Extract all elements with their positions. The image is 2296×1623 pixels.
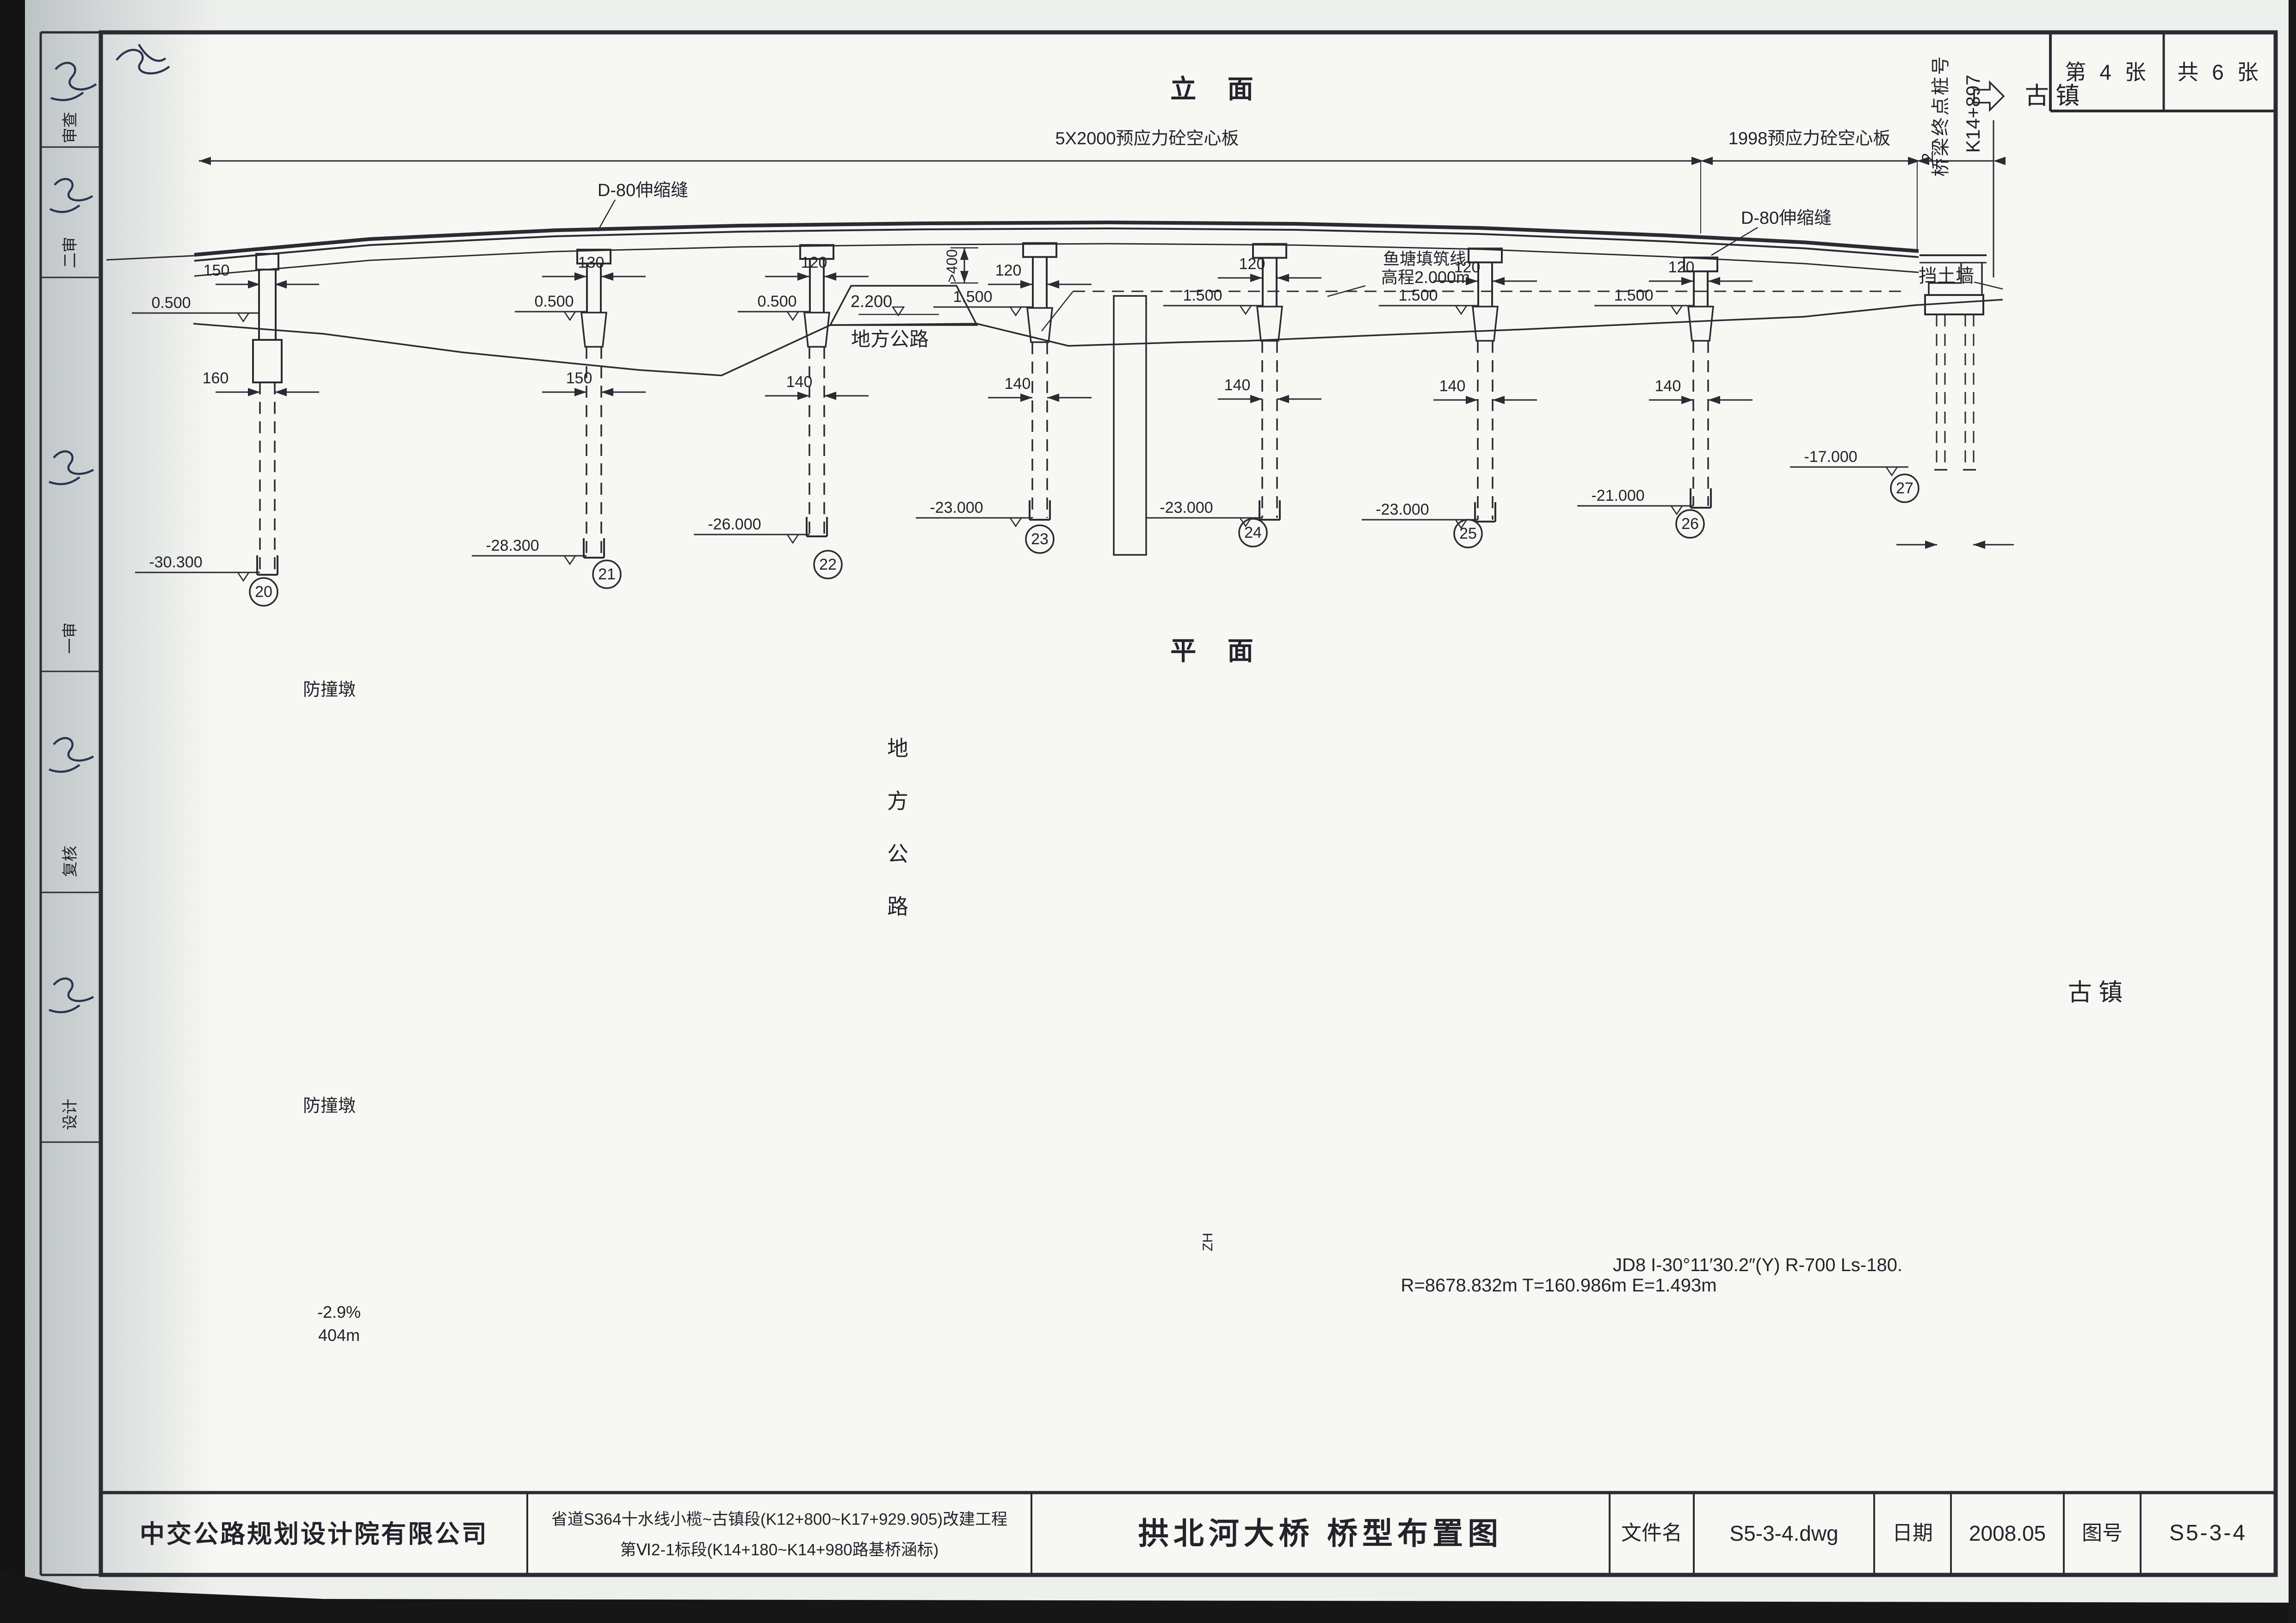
level-mark-icon bbox=[787, 312, 798, 320]
base-level: -26.000 bbox=[708, 516, 761, 532]
dim-label: 140 bbox=[1655, 378, 1681, 394]
sheet-total: 共 6 张 bbox=[2177, 61, 2262, 83]
dim-label: 140 bbox=[1439, 378, 1466, 394]
level-mark-icon bbox=[564, 556, 575, 564]
handwritten-signature bbox=[50, 179, 93, 212]
base-level: -17.000 bbox=[1804, 449, 1857, 465]
margin-label-shencha: 审查 bbox=[62, 112, 78, 143]
town-label-elevation: 古 镇 bbox=[2025, 84, 2080, 108]
date-value: 2008.05 bbox=[1969, 1523, 2046, 1544]
dim-label: 150 bbox=[204, 263, 230, 278]
level-mark-icon bbox=[564, 312, 575, 320]
span-label-right: 1998预应力砼空心板 bbox=[1728, 130, 1891, 148]
company-name: 中交公路规划设计院有限公司 bbox=[140, 1522, 488, 1547]
curve-data-1: JD8 I-30°11′30.2″(Y) R-700 Ls-180. bbox=[1613, 1256, 1902, 1274]
arrowhead-icon bbox=[248, 388, 260, 396]
crash-block-top: 防撞墩 bbox=[303, 681, 356, 699]
level-mark-icon bbox=[1671, 306, 1682, 314]
ground-line bbox=[193, 300, 2003, 375]
dim-label: 150 bbox=[566, 370, 593, 386]
arrowhead-icon bbox=[1250, 395, 1262, 403]
handwritten-signature bbox=[49, 738, 93, 772]
expansion-joint-left: D-80伸缩缝 bbox=[598, 182, 688, 199]
arrowhead-icon bbox=[1250, 274, 1262, 282]
dim-label: 130 bbox=[578, 255, 605, 270]
end-gap-dim: 2 bbox=[1920, 153, 1936, 162]
local-road-label-plan: 地方公路 bbox=[886, 737, 907, 948]
arrowhead-icon bbox=[1466, 396, 1478, 404]
arrowhead-icon bbox=[1925, 541, 1937, 549]
arrowhead-icon bbox=[1708, 277, 1720, 285]
road-clearance: >400 bbox=[944, 249, 959, 283]
project-line2: 第Ⅵ2-1标段(K14+180~K14+980路基桥涵标) bbox=[620, 1542, 939, 1558]
base-level: -23.000 bbox=[1160, 500, 1213, 516]
arrowhead-icon bbox=[1493, 396, 1505, 404]
arrowhead-icon bbox=[1681, 396, 1693, 404]
drawingno-value: S5-3-4 bbox=[2169, 1522, 2247, 1544]
scan-edge-bottom bbox=[0, 1571, 2296, 1623]
expansion-joint-right: D-80伸缩缝 bbox=[1741, 209, 1832, 227]
file-label: 文件名 bbox=[1621, 1523, 1682, 1543]
pier-number: 27 bbox=[1896, 480, 1913, 496]
pier-number: 23 bbox=[1031, 531, 1049, 547]
arrowhead-icon bbox=[1047, 280, 1059, 289]
cap-level: 1.500 bbox=[1614, 288, 1653, 303]
elevation-title: 立 面 bbox=[1170, 76, 1265, 102]
arrowhead-icon bbox=[797, 392, 809, 400]
base-level: -28.300 bbox=[486, 538, 539, 553]
dim-label: 160 bbox=[203, 370, 229, 386]
pier-number: 25 bbox=[1459, 526, 1477, 541]
cap-level: 1.500 bbox=[1398, 288, 1438, 303]
arrowhead-icon bbox=[824, 272, 836, 281]
polyline bbox=[598, 200, 615, 231]
grade-length: 404m bbox=[318, 1327, 360, 1344]
sheet-page: 第 4 张 bbox=[2065, 61, 2149, 83]
arrowhead-icon bbox=[1691, 157, 1703, 165]
plan-title: 平 面 bbox=[1170, 638, 1265, 664]
base-level: -23.000 bbox=[1376, 502, 1429, 517]
handwritten-signature bbox=[49, 451, 93, 484]
curve-data-2: R=8678.832m T=160.986m E=1.493m bbox=[1401, 1276, 1716, 1295]
arrowhead-icon bbox=[1020, 280, 1032, 289]
arrowhead-icon bbox=[1493, 277, 1505, 285]
arrowhead-icon bbox=[1994, 157, 2006, 165]
arrowhead-icon bbox=[275, 388, 287, 396]
arrowhead-icon bbox=[960, 248, 969, 260]
handwritten-signature bbox=[49, 978, 93, 1012]
dim-label: 140 bbox=[1224, 377, 1251, 393]
level-mark-icon bbox=[1886, 467, 1897, 475]
level-mark-icon bbox=[238, 313, 249, 321]
level-mark-icon bbox=[1010, 518, 1021, 526]
polygon bbox=[1027, 308, 1052, 342]
arrowhead-icon bbox=[601, 272, 613, 281]
road-elev: 2.200 bbox=[851, 293, 892, 310]
base-level: -23.000 bbox=[930, 500, 983, 516]
rect bbox=[256, 254, 278, 270]
level-mark-icon bbox=[238, 572, 249, 581]
local-road-label-elevation: 地方公路 bbox=[851, 330, 929, 349]
base-level: -21.000 bbox=[1591, 488, 1644, 504]
arrowhead-icon bbox=[1277, 274, 1289, 282]
drawingno-label: 图号 bbox=[2082, 1523, 2123, 1543]
pier-number: 20 bbox=[255, 584, 272, 600]
pier-bearing bbox=[1023, 243, 1056, 257]
pier-number: 21 bbox=[598, 566, 616, 582]
arrowhead-icon bbox=[199, 157, 211, 165]
arrowhead-icon bbox=[1908, 157, 1920, 165]
rect bbox=[1114, 296, 1146, 555]
zh-mark: ZH bbox=[1201, 1233, 1215, 1251]
arrowhead-icon bbox=[1277, 395, 1289, 403]
arrowhead-icon bbox=[1681, 277, 1693, 285]
handwritten-signature bbox=[51, 63, 96, 100]
grade-label: -2.9% bbox=[317, 1304, 361, 1321]
span-label-left: 5X2000预应力砼空心板 bbox=[1055, 130, 1239, 148]
line bbox=[106, 256, 194, 260]
project-line1: 省道S364十水线小榄~古镇段(K12+800~K17+929.905)改建工程 bbox=[551, 1512, 1007, 1528]
date-label: 日期 bbox=[1892, 1523, 1933, 1543]
cap-level: 0.500 bbox=[151, 295, 191, 311]
arrowhead-icon bbox=[824, 392, 836, 400]
dim-label: 140 bbox=[786, 374, 813, 390]
bridge-end-station: K14+897 bbox=[1963, 74, 1983, 153]
scan-edge-left bbox=[0, 0, 25, 1623]
margin-label-ershen: 二审 bbox=[62, 237, 78, 268]
margin-label-fuhe: 复核 bbox=[62, 846, 78, 877]
arrowhead-icon bbox=[1047, 393, 1059, 402]
pier-number: 26 bbox=[1681, 516, 1699, 532]
file-value: S5-3-4.dwg bbox=[1729, 1523, 1838, 1544]
polygon bbox=[1688, 307, 1713, 341]
level-mark-icon bbox=[1456, 306, 1467, 314]
town-label-plan: 古 镇 bbox=[2068, 981, 2123, 1005]
crash-block-bottom: 防撞墩 bbox=[303, 1097, 356, 1115]
pier-number: 24 bbox=[1244, 525, 1262, 541]
margin-label-yishen: 一审 bbox=[62, 622, 78, 654]
rect bbox=[253, 340, 282, 382]
polyline bbox=[1974, 282, 2003, 289]
dim-label: 120 bbox=[1668, 259, 1695, 275]
cap-level: 1.500 bbox=[1183, 288, 1222, 303]
arrowhead-icon bbox=[1708, 396, 1720, 404]
drawing-frame bbox=[101, 32, 2276, 1575]
dim-label: 120 bbox=[801, 255, 827, 270]
polygon bbox=[1257, 307, 1282, 341]
arrowhead-icon bbox=[1973, 541, 1985, 549]
polygon bbox=[581, 313, 606, 347]
arrowhead-icon bbox=[574, 272, 586, 281]
polygon bbox=[1473, 307, 1498, 341]
arrowhead-icon bbox=[601, 388, 613, 396]
cap-level: 0.500 bbox=[757, 294, 796, 309]
dim-label: 120 bbox=[995, 263, 1022, 278]
base-level: -30.300 bbox=[149, 554, 202, 570]
dim-label: 120 bbox=[1454, 259, 1481, 275]
arrowhead-icon bbox=[797, 272, 809, 281]
scan-edge-right bbox=[2289, 0, 2296, 1623]
drawing-sheet: 第 4 张 共 6 张 桥梁终点桩号 K14+897 2 立 面 平 面 5X2… bbox=[0, 0, 2296, 1623]
level-mark-icon bbox=[1240, 306, 1251, 314]
level-mark-icon bbox=[787, 535, 798, 543]
handwritten-signature bbox=[117, 44, 169, 74]
arrowhead-icon bbox=[960, 271, 969, 283]
polygon bbox=[804, 313, 829, 347]
drawing-linework bbox=[0, 0, 2296, 1623]
level-mark-icon bbox=[1010, 307, 1021, 315]
arrowhead-icon bbox=[1020, 393, 1032, 402]
dim-label: 120 bbox=[1239, 256, 1265, 272]
arrowhead-icon bbox=[574, 388, 586, 396]
cap-level: 0.500 bbox=[534, 294, 574, 309]
retaining-wall-label: 挡土墙 bbox=[1919, 267, 1974, 285]
dim-label: 140 bbox=[1005, 376, 1031, 392]
drawing-title: 拱北河大桥 桥型布置图 bbox=[1138, 1518, 1503, 1549]
cap-level: 1.500 bbox=[953, 289, 992, 305]
pier-number: 22 bbox=[819, 557, 837, 572]
margin-label-sheji: 设计 bbox=[62, 1099, 78, 1130]
